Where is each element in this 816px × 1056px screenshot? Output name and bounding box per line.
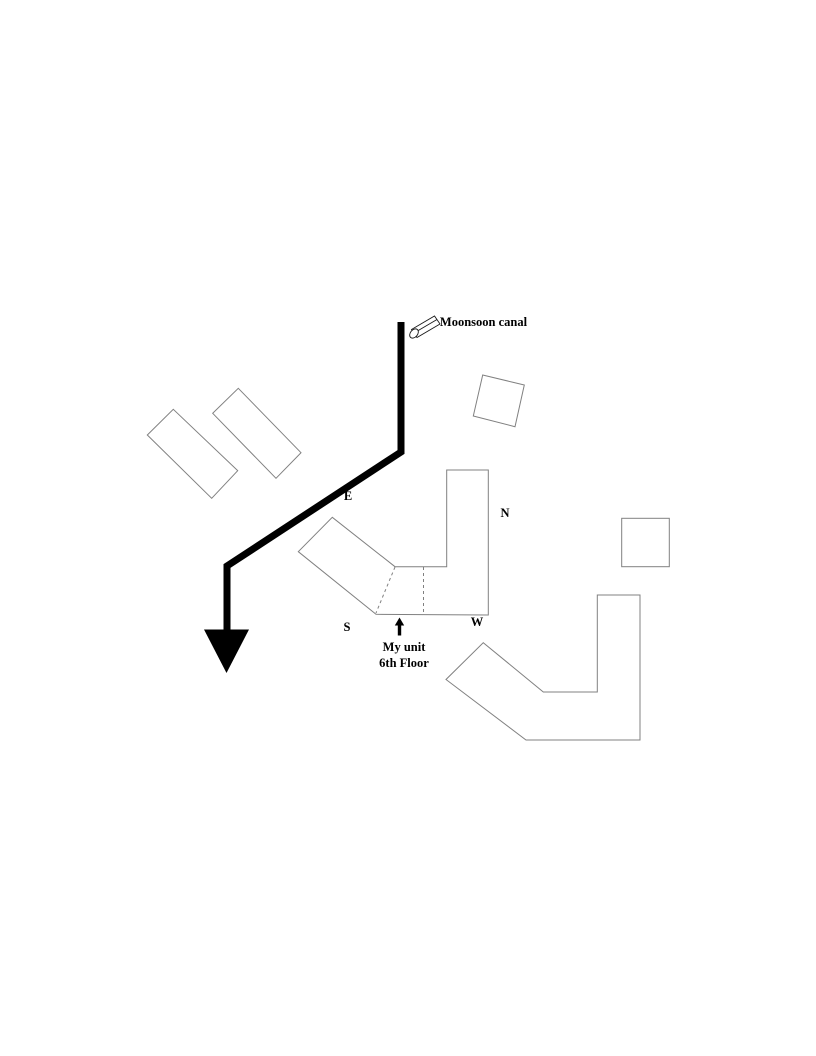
building-rotated-square (473, 375, 524, 427)
compass-west-label: W (471, 616, 484, 629)
compass-east-label: E (344, 490, 352, 503)
unit-caption-line1: My unit (383, 641, 426, 654)
document-page: Moonsoon canal E N S W My unit 6th Floor (0, 0, 816, 1056)
canal-label: Moonsoon canal (440, 316, 527, 329)
canal-flow-arrowhead (204, 630, 249, 674)
compass-south-label: S (344, 621, 351, 634)
compass-north-label: N (500, 507, 509, 520)
unit-caption-line2: 6th Floor (379, 656, 429, 669)
canal-direction-icon (408, 316, 440, 340)
unit-pointer-arrow (395, 618, 404, 636)
building-small-square (622, 518, 670, 566)
my-unit-building (298, 470, 488, 615)
map-diagram (0, 0, 816, 1056)
